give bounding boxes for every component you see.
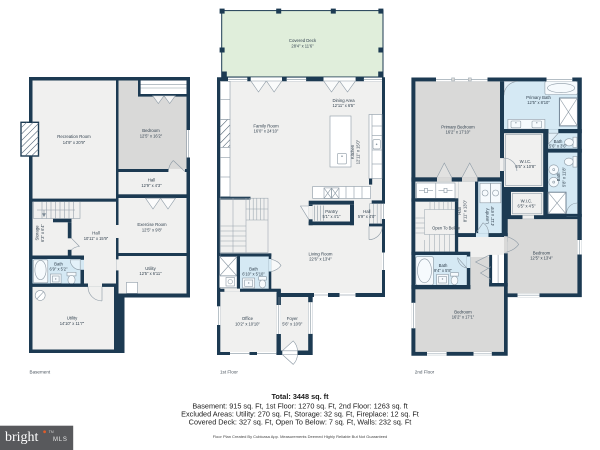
svg-text:MLS: MLS xyxy=(53,437,68,443)
svg-text:Total: 3448 sq. ft: Total: 3448 sq. ft xyxy=(271,392,329,401)
svg-text:14'9" x 20'9": 14'9" x 20'9" xyxy=(63,140,86,145)
svg-text:6'3" x 6'4": 6'3" x 6'4" xyxy=(40,224,45,242)
svg-text:6'10" x 5'10": 6'10" x 5'10" xyxy=(242,272,265,277)
svg-text:8'11" x 13'0": 8'11" x 13'0" xyxy=(463,199,468,222)
svg-text:Covered Deck: Covered Deck xyxy=(289,38,317,43)
svg-text:16'0" x 24'10": 16'0" x 24'10" xyxy=(254,129,279,134)
svg-text:12'11" x 6'5": 12'11" x 6'5" xyxy=(333,103,356,108)
svg-text:5'1" x 4'1": 5'1" x 4'1" xyxy=(323,214,341,219)
svg-text:Bath: Bath xyxy=(556,172,561,181)
svg-text:Exercise Room: Exercise Room xyxy=(137,222,167,227)
svg-text:Utility: Utility xyxy=(67,316,78,321)
svg-text:10'2" x 10'10": 10'2" x 10'10" xyxy=(235,322,260,327)
svg-text:Hall: Hall xyxy=(457,207,462,214)
svg-text:6'5" x 10'8": 6'5" x 10'8" xyxy=(515,164,536,169)
svg-text:Basement: Basement xyxy=(30,370,51,375)
svg-text:Bedroom: Bedroom xyxy=(142,128,160,133)
svg-text:14'10" x 11'7": 14'10" x 11'7" xyxy=(60,321,85,326)
svg-text:2nd Floor: 2nd Floor xyxy=(415,370,435,375)
svg-text:Laundry: Laundry xyxy=(485,207,490,223)
svg-text:Hall: Hall xyxy=(92,231,99,236)
svg-text:5'6" x 10'0": 5'6" x 10'0" xyxy=(282,322,303,327)
svg-text:4'11" x 6'9": 4'11" x 6'9" xyxy=(490,206,495,226)
svg-text:28'4" x 11'6": 28'4" x 11'6" xyxy=(291,44,314,49)
svg-text:12'5" x 16'2": 12'5" x 16'2" xyxy=(140,134,163,139)
svg-text:Open To Below: Open To Below xyxy=(432,226,460,231)
svg-text:16'2" x 17'1": 16'2" x 17'1" xyxy=(452,315,475,320)
svg-text:bright: bright xyxy=(5,430,39,445)
svg-text:1st Floor: 1st Floor xyxy=(220,370,238,375)
svg-text:Office: Office xyxy=(242,316,254,321)
svg-text:12'5" x 9'8": 12'5" x 9'8" xyxy=(142,228,163,233)
svg-text:10'11" x 15'9": 10'11" x 15'9" xyxy=(84,236,109,241)
svg-text:12'9" x 4'3": 12'9" x 4'3" xyxy=(141,183,162,188)
svg-text:Recreation Room: Recreation Room xyxy=(57,134,91,139)
svg-text:5'8" x 11'8": 5'8" x 11'8" xyxy=(562,167,567,187)
svg-text:Storage: Storage xyxy=(35,225,40,241)
svg-text:5'6" x 3'6": 5'6" x 3'6" xyxy=(549,144,567,149)
svg-text:TM: TM xyxy=(49,430,54,434)
svg-text:12'5" x 13'4": 12'5" x 13'4" xyxy=(530,256,553,261)
svg-text:6'9" x 5'2": 6'9" x 5'2" xyxy=(50,267,68,272)
svg-text:6'5" x 4'5": 6'5" x 4'5" xyxy=(518,204,536,209)
svg-text:22'6" x 13'4": 22'6" x 13'4" xyxy=(309,257,332,262)
svg-text:Kitchen: Kitchen xyxy=(350,144,355,159)
svg-text:16'2" x 17'10": 16'2" x 17'10" xyxy=(446,130,471,135)
svg-text:5'9" x 4'0": 5'9" x 4'0" xyxy=(358,214,376,219)
svg-text:12'5" x 8'10": 12'5" x 8'10" xyxy=(527,100,550,105)
svg-text:Covered Deck: 327 sq. Ft, Open: Covered Deck: 327 sq. Ft, Open To Below:… xyxy=(189,418,412,427)
svg-text:Foyer: Foyer xyxy=(287,316,299,321)
svg-text:9'4" x 5'8": 9'4" x 5'8" xyxy=(434,268,452,273)
svg-text:12'5" x 6'11": 12'5" x 6'11" xyxy=(139,271,162,276)
svg-text:Floor Plan Created By Cubicasa: Floor Plan Created By Cubicasa App. Meas… xyxy=(213,434,388,439)
svg-text:Hall: Hall xyxy=(148,178,155,183)
svg-text:12'11" x 15'0": 12'11" x 15'0" xyxy=(356,139,361,164)
